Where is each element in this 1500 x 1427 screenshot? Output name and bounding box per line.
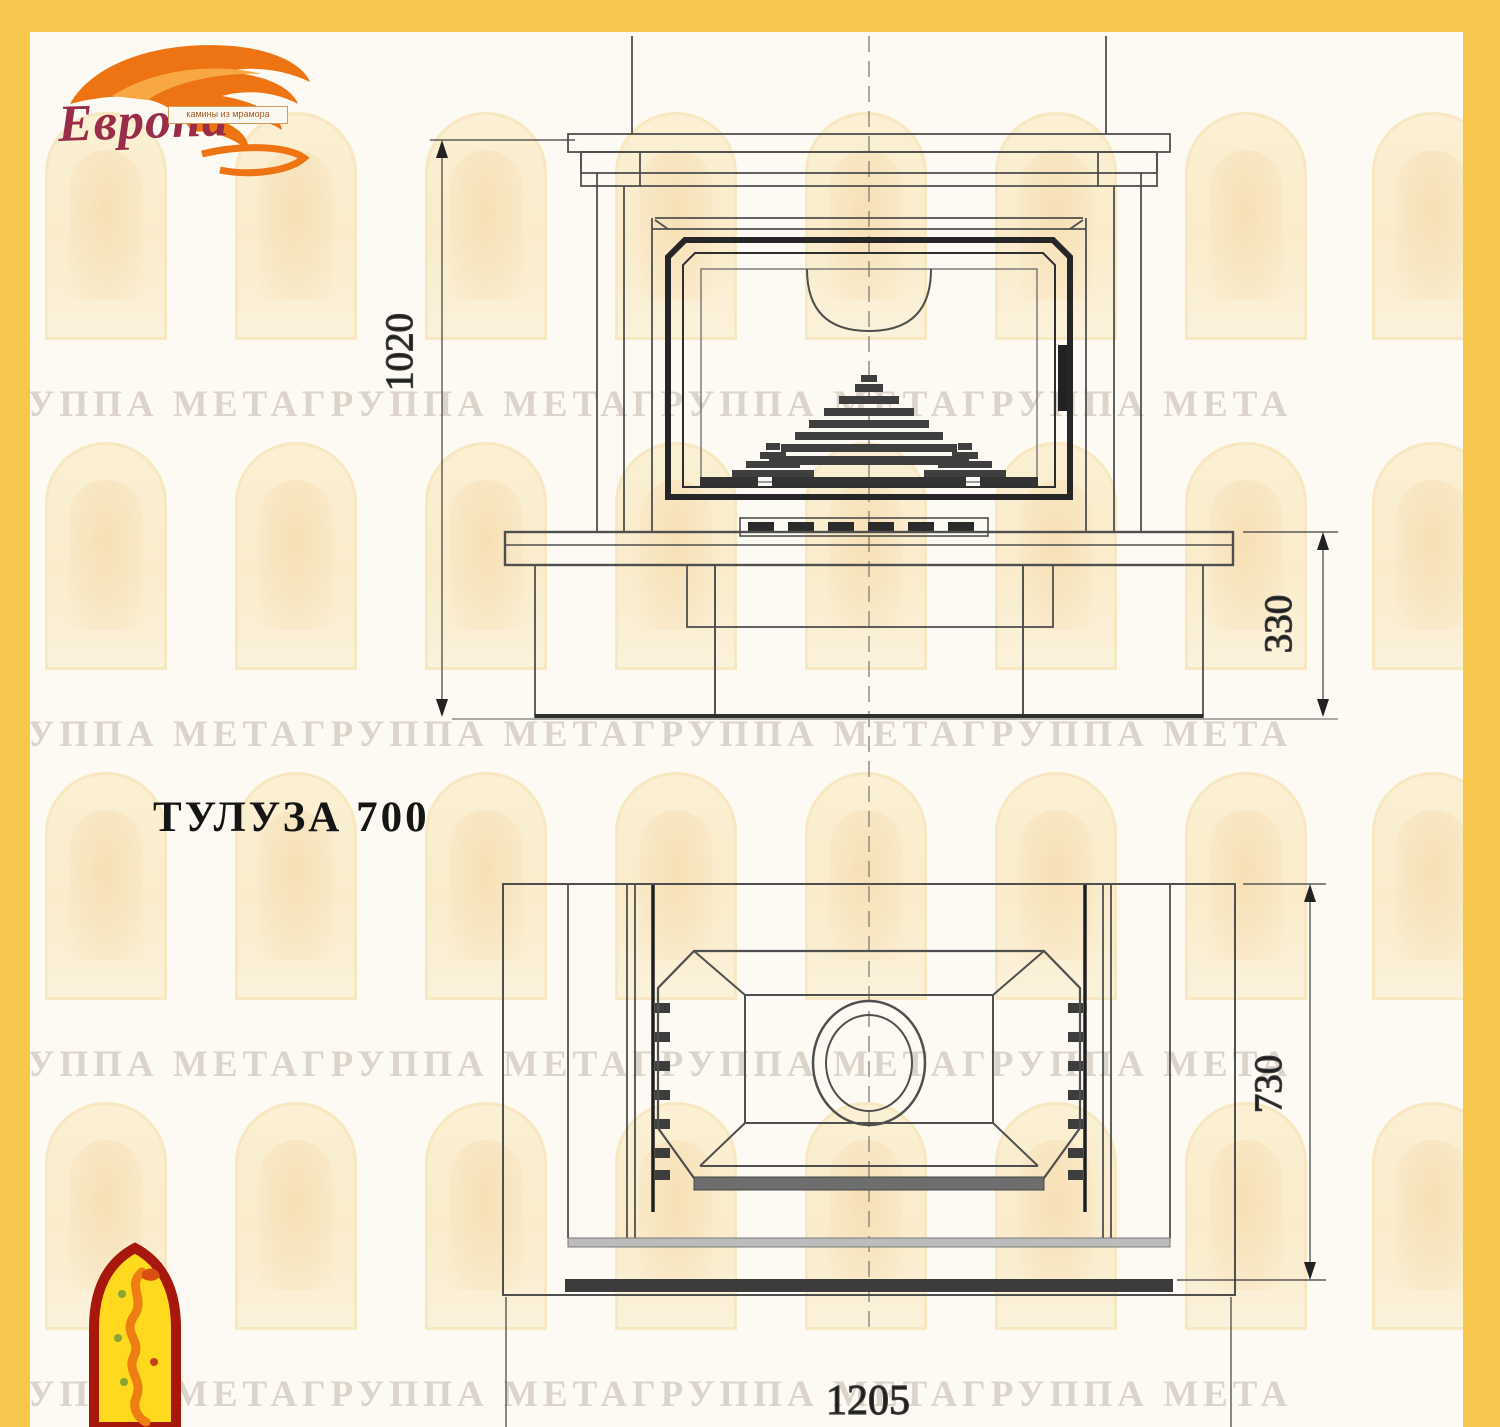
frame-edge-top <box>0 0 1500 32</box>
page-root: ГРУППА МЕТАГРУППА МЕТАГРУППА МЕТАГРУППА … <box>0 0 1500 1427</box>
dimension-label: 1020 <box>378 313 421 391</box>
dimension-1020: 1020 <box>378 140 575 717</box>
logo: Европа камины из мрамора <box>52 26 312 191</box>
door-handle <box>1058 345 1067 411</box>
logo-tagline: камины из мрамора <box>168 106 288 124</box>
dimension-label: 730 <box>1247 1055 1290 1114</box>
dimension-label: 1205 <box>826 1378 910 1424</box>
page-title: ТУЛУЗА 700 <box>153 793 430 842</box>
technical-drawing: 1020 330 <box>0 0 1500 1427</box>
front-view <box>452 36 1338 719</box>
plan-front-step <box>568 1238 1170 1247</box>
frame-edge-right <box>1463 0 1500 1427</box>
dimension-label: 330 <box>1257 595 1300 654</box>
frame-edge-left <box>0 0 30 1427</box>
vent-grille <box>740 518 988 536</box>
dimension-330: 330 <box>1243 532 1338 717</box>
stork-arch-emblem-icon <box>84 1242 186 1427</box>
dimension-730: 730 <box>1177 884 1326 1280</box>
plan-front-band <box>565 1279 1173 1292</box>
